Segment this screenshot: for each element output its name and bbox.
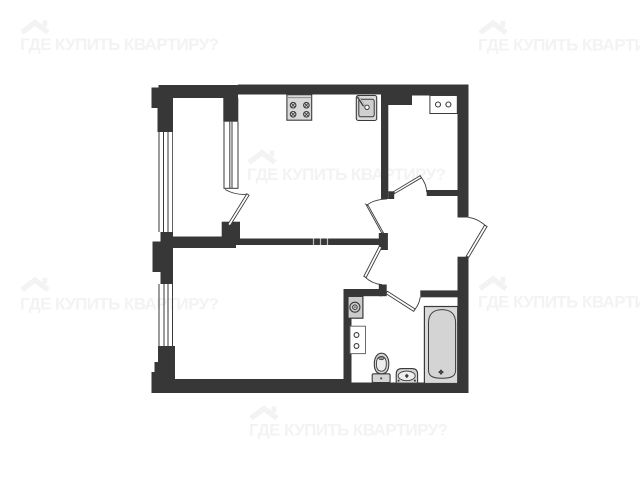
svg-text:ГДЕ КУПИТЬ КВАРТИРУ?: ГДЕ КУПИТЬ КВАРТИРУ?	[249, 421, 448, 440]
svg-text:ГДЕ КУПИТЬ КВАРТИРУ?: ГДЕ КУПИТЬ КВАРТИРУ?	[478, 36, 640, 55]
svg-text:ГДЕ КУПИТЬ КВАРТИРУ?: ГДЕ КУПИТЬ КВАРТИРУ?	[478, 292, 640, 311]
svg-text:ГДЕ КУПИТЬ КВАРТИРУ?: ГДЕ КУПИТЬ КВАРТИРУ?	[20, 294, 219, 313]
svg-text:ГДЕ КУПИТЬ КВАРТИРУ?: ГДЕ КУПИТЬ КВАРТИРУ?	[20, 35, 219, 54]
